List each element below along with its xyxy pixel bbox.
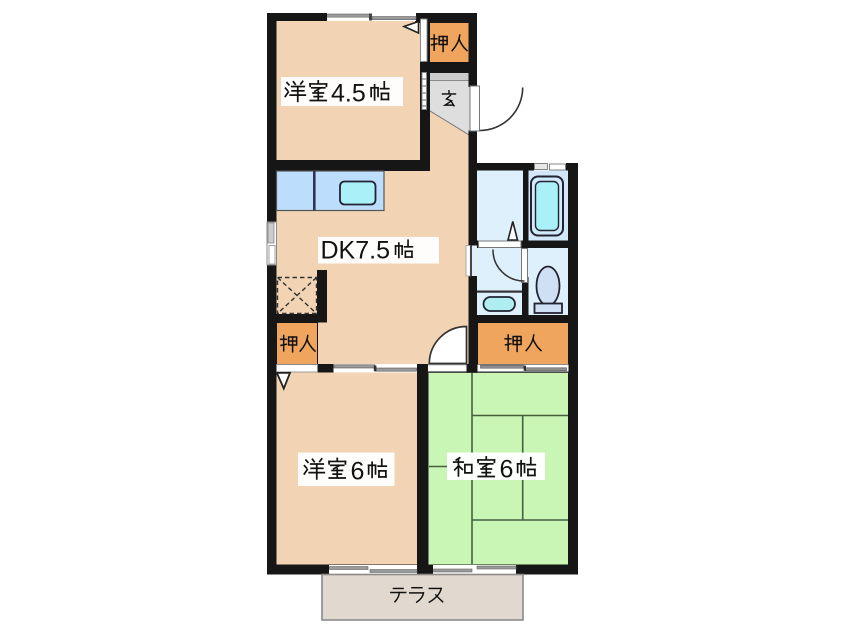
svg-text:6: 6 [351,458,365,486]
svg-text:6: 6 [500,456,514,484]
svg-text:DK7.5: DK7.5 [321,237,390,265]
svg-text:4.5: 4.5 [331,80,366,108]
